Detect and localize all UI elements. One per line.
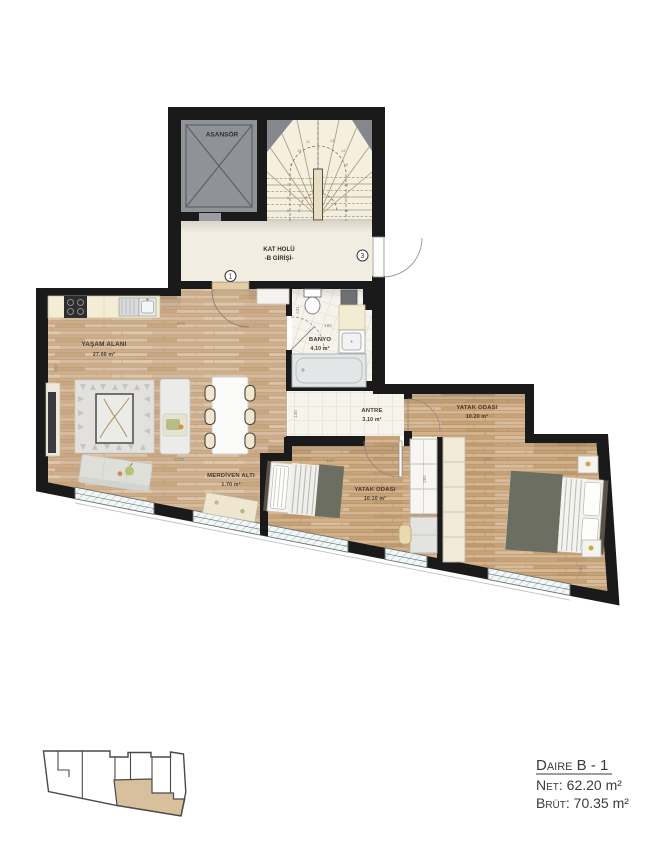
svg-text:MERDİVEN ALTI: MERDİVEN ALTI bbox=[207, 472, 255, 479]
svg-text:YATAK ODASI: YATAK ODASI bbox=[456, 405, 498, 411]
svg-text:10: 10 bbox=[297, 149, 301, 153]
svg-text:162: 162 bbox=[578, 565, 583, 573]
svg-text:13: 13 bbox=[330, 139, 334, 143]
svg-text:Brüt: 70.35 m²: Brüt: 70.35 m² bbox=[536, 795, 629, 811]
svg-text:4.10 m²: 4.10 m² bbox=[310, 346, 329, 352]
svg-text:1.70 m²: 1.70 m² bbox=[221, 482, 240, 488]
svg-text:16: 16 bbox=[344, 183, 348, 187]
svg-text:10.10 m²: 10.10 m² bbox=[364, 496, 386, 502]
svg-text:472: 472 bbox=[483, 457, 491, 462]
svg-text:YATAK ODASI: YATAK ODASI bbox=[354, 487, 396, 493]
svg-text:3.10 m²: 3.10 m² bbox=[362, 417, 381, 423]
svg-text:578: 578 bbox=[177, 321, 185, 326]
svg-text:BANYO: BANYO bbox=[309, 337, 331, 343]
svg-text:11: 11 bbox=[306, 140, 310, 144]
svg-text:14: 14 bbox=[341, 149, 345, 153]
svg-text:424: 424 bbox=[326, 458, 334, 463]
svg-text:1: 1 bbox=[229, 274, 233, 281]
svg-text:130: 130 bbox=[293, 410, 298, 418]
svg-text:10.20 m²: 10.20 m² bbox=[466, 414, 488, 420]
svg-text:5: 5 bbox=[287, 209, 289, 213]
svg-text:KAT HOLÜ: KAT HOLÜ bbox=[263, 246, 295, 253]
svg-text:Net: 62.20 m²: Net: 62.20 m² bbox=[536, 777, 622, 793]
svg-text:27.00 m²: 27.00 m² bbox=[93, 352, 115, 358]
svg-text:180: 180 bbox=[324, 323, 332, 328]
svg-text:15: 15 bbox=[344, 163, 348, 167]
svg-text:-B GİRİŞİ-: -B GİRİŞİ- bbox=[265, 255, 294, 262]
svg-text:17: 17 bbox=[344, 196, 348, 200]
svg-text:8: 8 bbox=[290, 163, 292, 167]
svg-text:Daire B - 1: Daire B - 1 bbox=[536, 757, 608, 774]
svg-text:7: 7 bbox=[287, 183, 289, 187]
svg-text:3: 3 bbox=[361, 253, 365, 260]
svg-text:18: 18 bbox=[344, 209, 348, 213]
svg-text:ANTRE: ANTRE bbox=[361, 408, 382, 414]
svg-text:YAŞAM ALANI: YAŞAM ALANI bbox=[81, 341, 126, 348]
svg-text:291: 291 bbox=[422, 475, 427, 483]
svg-text:453: 453 bbox=[53, 364, 58, 372]
svg-text:6: 6 bbox=[287, 196, 289, 200]
svg-text:241: 241 bbox=[295, 306, 300, 314]
svg-text:KOR.: KOR. bbox=[174, 457, 185, 462]
svg-text:ASANSÖR: ASANSÖR bbox=[206, 130, 239, 139]
